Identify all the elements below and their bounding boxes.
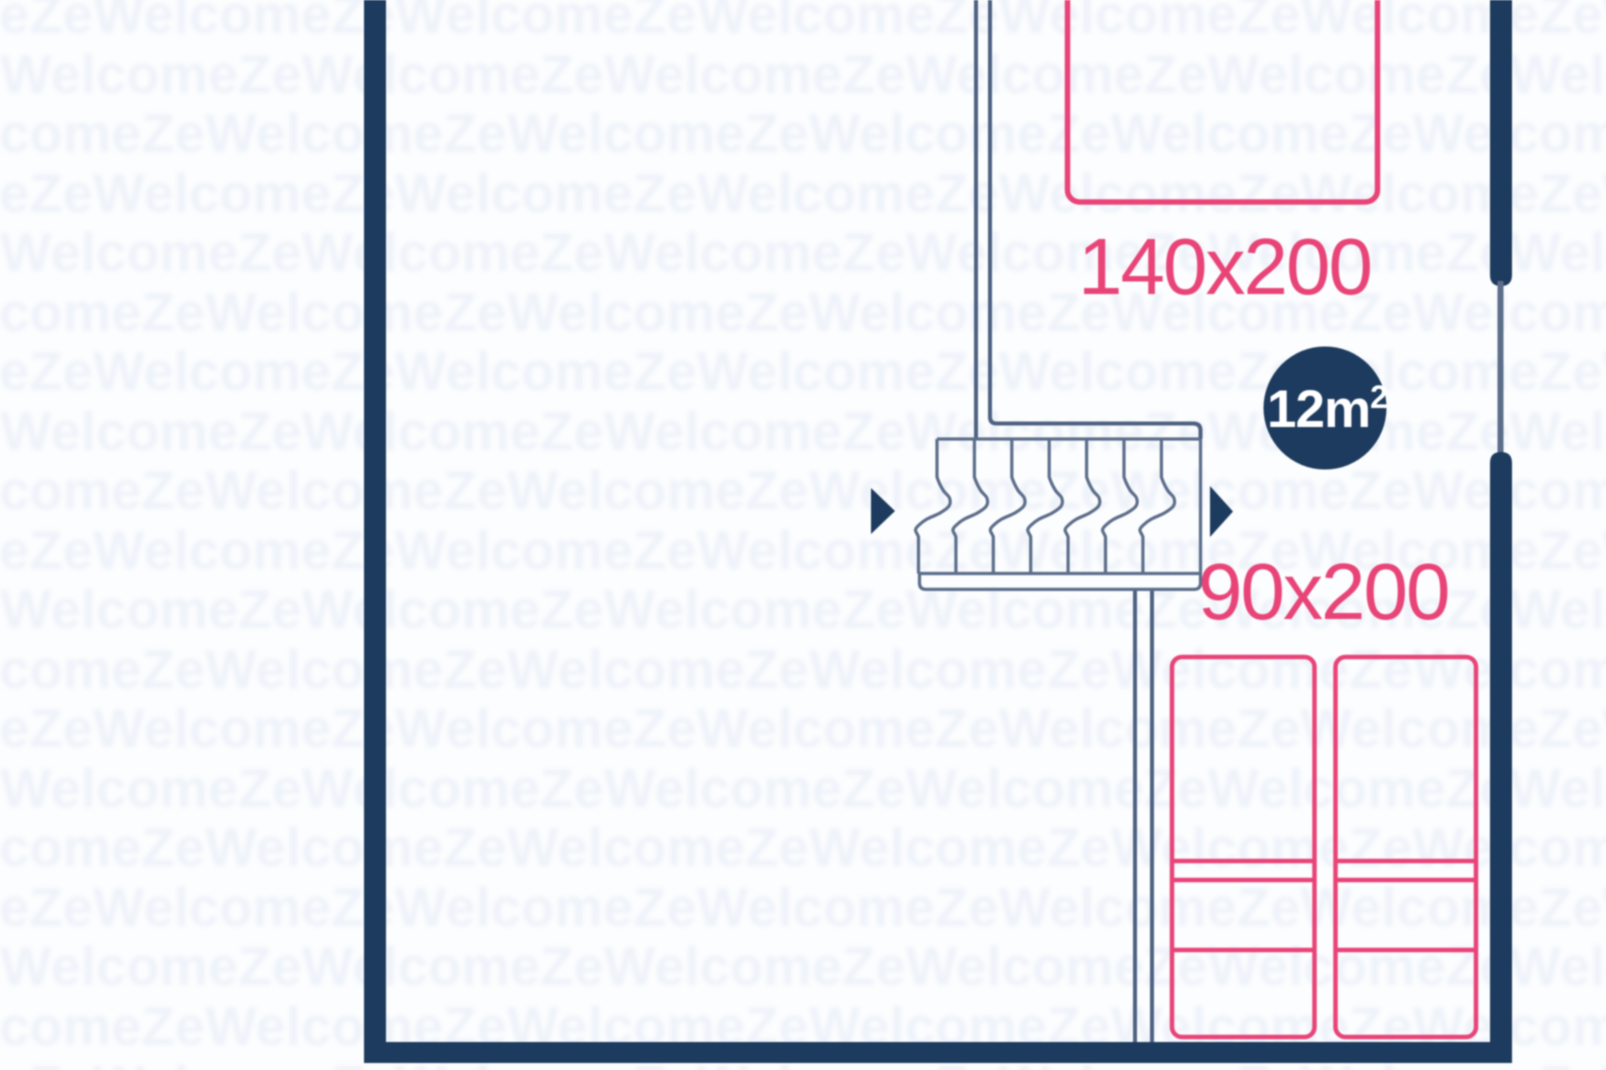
svg-text:12m2: 12m2 <box>1267 379 1387 439</box>
svg-text:140x200: 140x200 <box>1078 222 1371 311</box>
svg-text:90x200: 90x200 <box>1198 547 1448 636</box>
